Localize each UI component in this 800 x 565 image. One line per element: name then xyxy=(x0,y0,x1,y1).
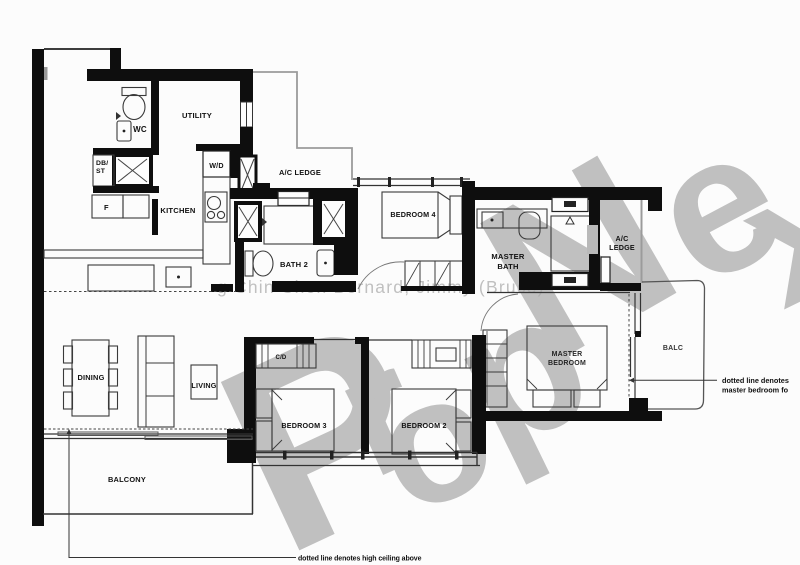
svg-text:BEDROOM: BEDROOM xyxy=(548,360,586,367)
svg-text:BATH 2: BATH 2 xyxy=(280,260,308,269)
svg-text:BALCONY: BALCONY xyxy=(108,475,146,484)
svg-text:WC: WC xyxy=(133,125,147,134)
svg-text:UTILITY: UTILITY xyxy=(182,111,212,120)
svg-text:F: F xyxy=(104,203,109,212)
svg-text:ST: ST xyxy=(96,168,106,175)
svg-text:DINING: DINING xyxy=(77,373,104,382)
svg-text:DB/: DB/ xyxy=(96,160,108,167)
svg-text:A/C LEDGE: A/C LEDGE xyxy=(279,168,321,177)
svg-text:BATH: BATH xyxy=(497,262,518,271)
svg-text:C/D: C/D xyxy=(276,355,287,361)
svg-text:master bedroom fo: master bedroom fo xyxy=(722,386,789,395)
svg-text:BALC: BALC xyxy=(663,345,683,352)
svg-text:BEDROOM 3: BEDROOM 3 xyxy=(281,421,326,430)
svg-text:g Chin Chen Bernard, Jimmy (Br: g Chin Chen Bernard, Jimmy (Bruce) xyxy=(217,277,545,297)
svg-text:dotted line denotes high ceili: dotted line denotes high ceiling above xyxy=(298,556,422,563)
svg-text:BEDROOM 4: BEDROOM 4 xyxy=(390,210,435,219)
svg-text:LEDGE: LEDGE xyxy=(609,243,635,252)
svg-text:LIVING: LIVING xyxy=(191,381,216,390)
svg-text:A/C: A/C xyxy=(616,234,629,243)
svg-text:dotted line denotes: dotted line denotes xyxy=(722,376,789,385)
svg-text:KITCHEN: KITCHEN xyxy=(160,206,195,215)
svg-text:BEDROOM 2: BEDROOM 2 xyxy=(401,421,446,430)
svg-text:MASTER: MASTER xyxy=(491,252,525,261)
svg-text:W/D: W/D xyxy=(209,161,224,170)
svg-text:MASTER: MASTER xyxy=(552,351,583,358)
